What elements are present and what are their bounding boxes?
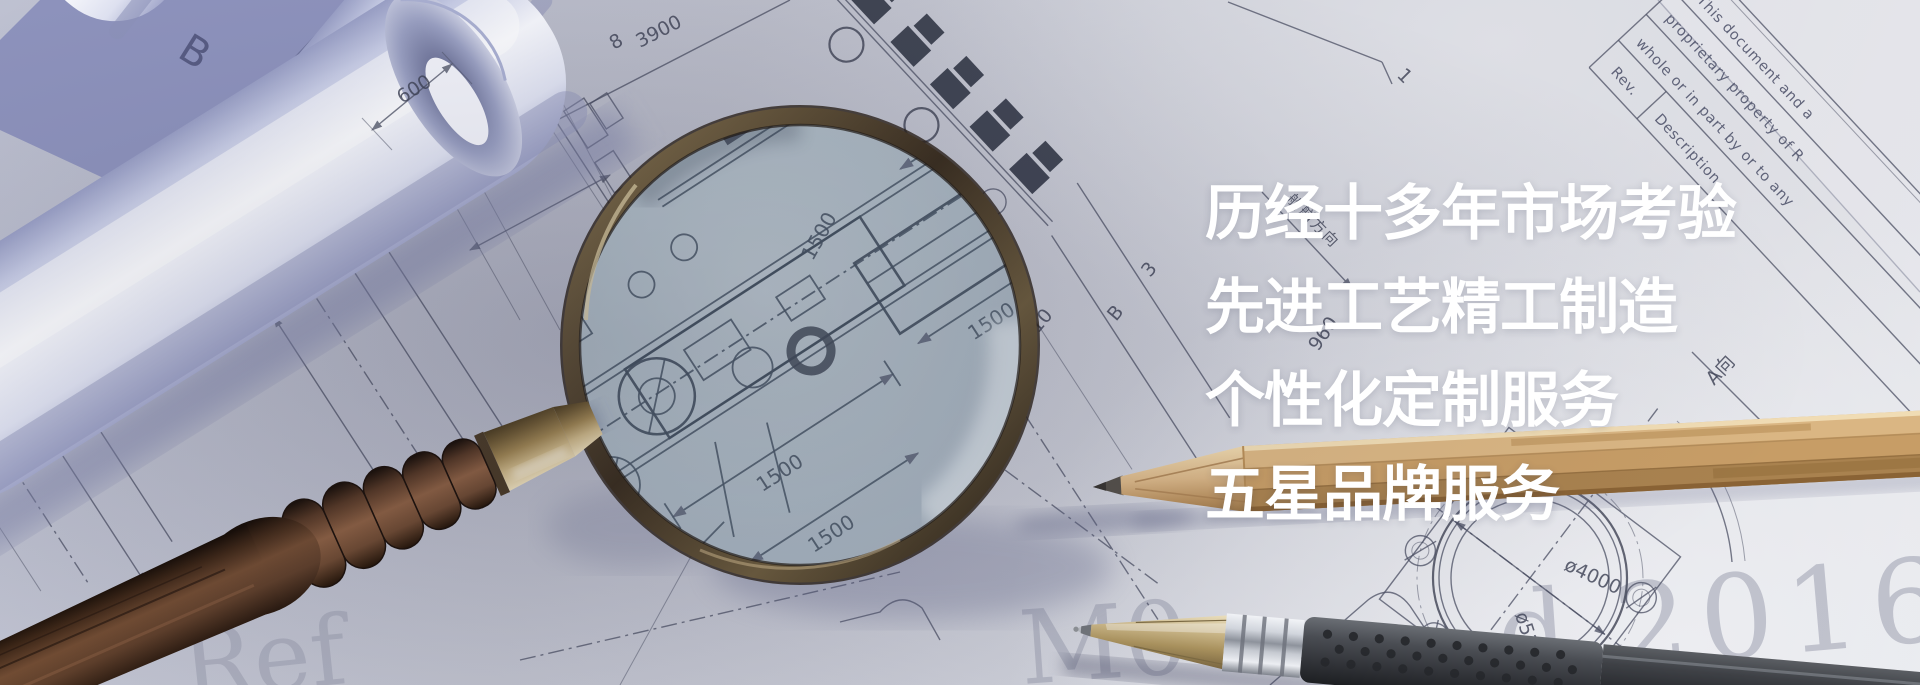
hero-text-block: 历经十多年市场考验 先进工艺精工制造 个性化定制服务 五星品牌服务 [1205, 168, 1736, 542]
hero-line-1: 历经十多年市场考验 [1205, 168, 1736, 262]
hero-line-3: 个性化定制服务 [1205, 355, 1736, 449]
hero-line-2: 先进工艺精工制造 [1205, 262, 1736, 356]
hero-line-4: 五星品牌服务 [1205, 449, 1736, 543]
hero-banner: Ref M0 d 2016- 3900 8 6 [0, 0, 1920, 685]
